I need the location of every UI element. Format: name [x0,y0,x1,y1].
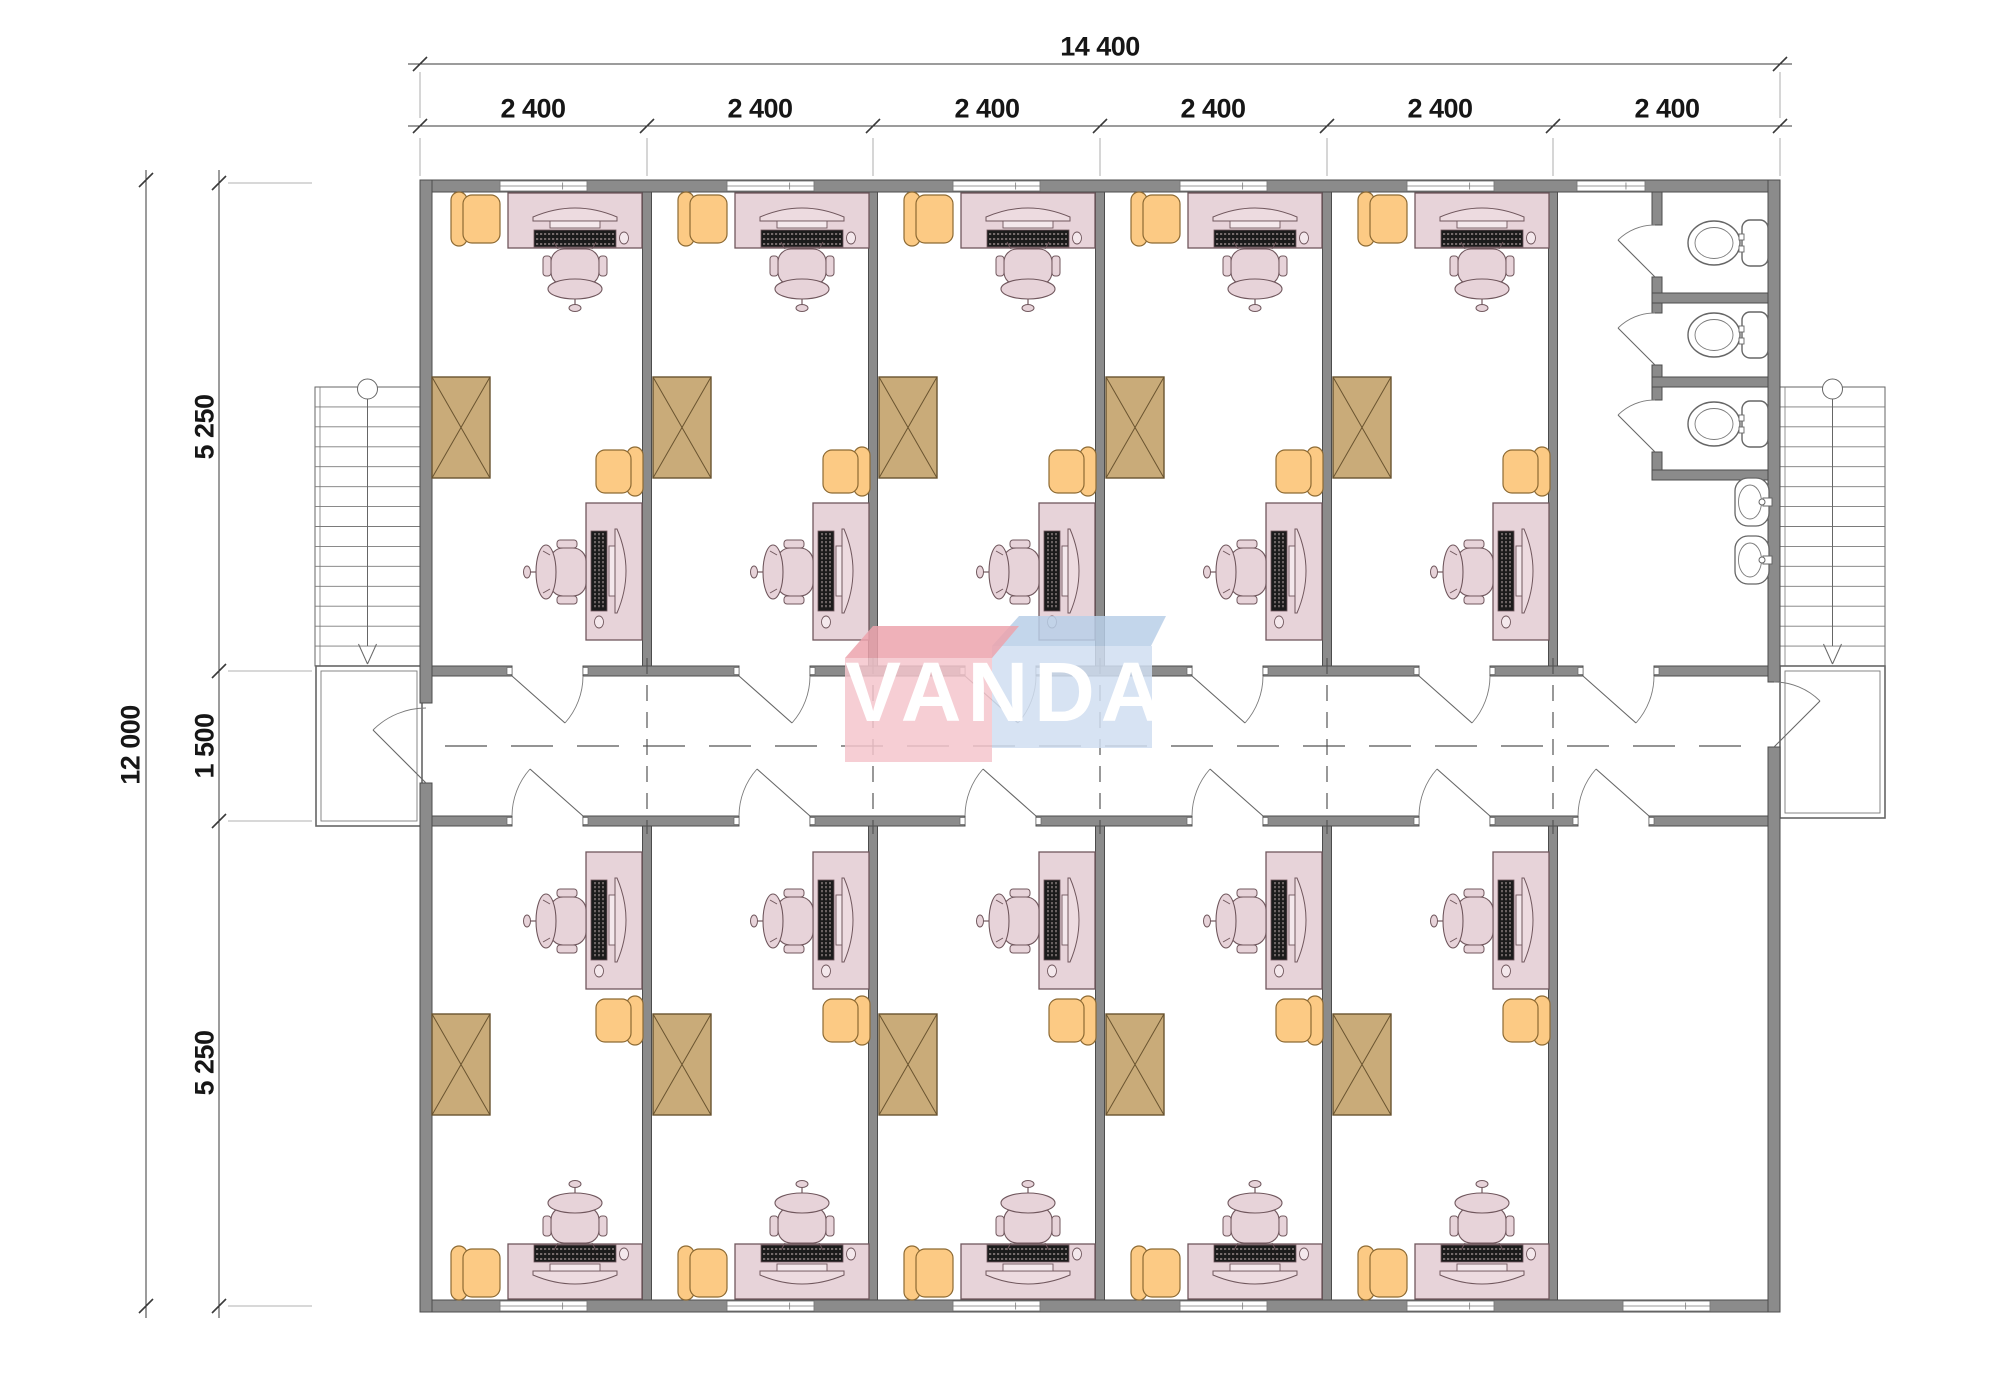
washroom-fixtures [1688,220,1772,584]
dim-depth-bottom: 5 250 [190,1030,221,1095]
door-swing [1192,769,1263,816]
office-bottom-2 [653,852,870,1300]
toilet [1688,220,1768,266]
office-bottom-1 [432,852,643,1300]
door-swing [1419,769,1490,816]
door-swing [1583,676,1654,723]
window [953,1301,1040,1311]
dim-depth-top: 5 250 [190,394,221,459]
landing-east [1780,666,1885,818]
office-top-5 [1333,192,1550,640]
wash-basin [1735,478,1772,526]
dim-total-width: 14 400 [1060,32,1140,63]
office-bottom-5 [1333,852,1550,1300]
window [1577,181,1645,191]
staircase-left [315,379,420,666]
wash-basin [1735,536,1772,584]
dim-bay-4: 2 400 [1180,94,1245,125]
dim-bay-6: 2 400 [1634,94,1699,125]
wc-stall-door [1618,313,1655,365]
door-swing [1192,676,1263,723]
staircase-right [1780,379,1885,666]
dim-bay-5: 2 400 [1407,94,1472,125]
office-top-4 [1106,192,1323,640]
window [1180,181,1267,191]
dim-bay-3: 2 400 [954,94,1019,125]
window [1407,181,1494,191]
office-top-2 [653,192,870,640]
window [727,1301,814,1311]
wc-stall-door [1618,400,1655,452]
door-swing [739,676,810,723]
office-top-3 [879,192,1096,640]
window [953,181,1040,191]
dim-corridor: 1 500 [190,713,221,778]
door-swing [512,769,583,816]
wc-stall-door [1618,225,1655,277]
toilet [1688,312,1768,358]
toilet [1688,401,1768,447]
door-swing [965,676,1036,723]
window [1623,1301,1710,1311]
dim-bay-1: 2 400 [500,94,565,125]
door-swing [512,676,583,723]
dim-total-height: 12 000 [116,705,147,785]
floor-plan-drawing [0,0,2000,1380]
corridor-axes [445,658,1762,834]
door-swing [739,769,810,816]
window [727,181,814,191]
office-top-1 [432,192,643,640]
floor-plan-canvas: 14 400 2 400 2 400 2 400 2 400 2 400 2 4… [0,0,2000,1380]
office-bottom-4 [1106,852,1323,1300]
window [500,181,587,191]
door-swing [1578,769,1649,816]
window [500,1301,587,1311]
dim-bay-2: 2 400 [727,94,792,125]
door-swing [1419,676,1490,723]
office-bottom-3 [879,852,1096,1300]
door-swing [965,769,1036,816]
window [1407,1301,1494,1311]
window [1180,1301,1267,1311]
landing-west [316,666,422,826]
